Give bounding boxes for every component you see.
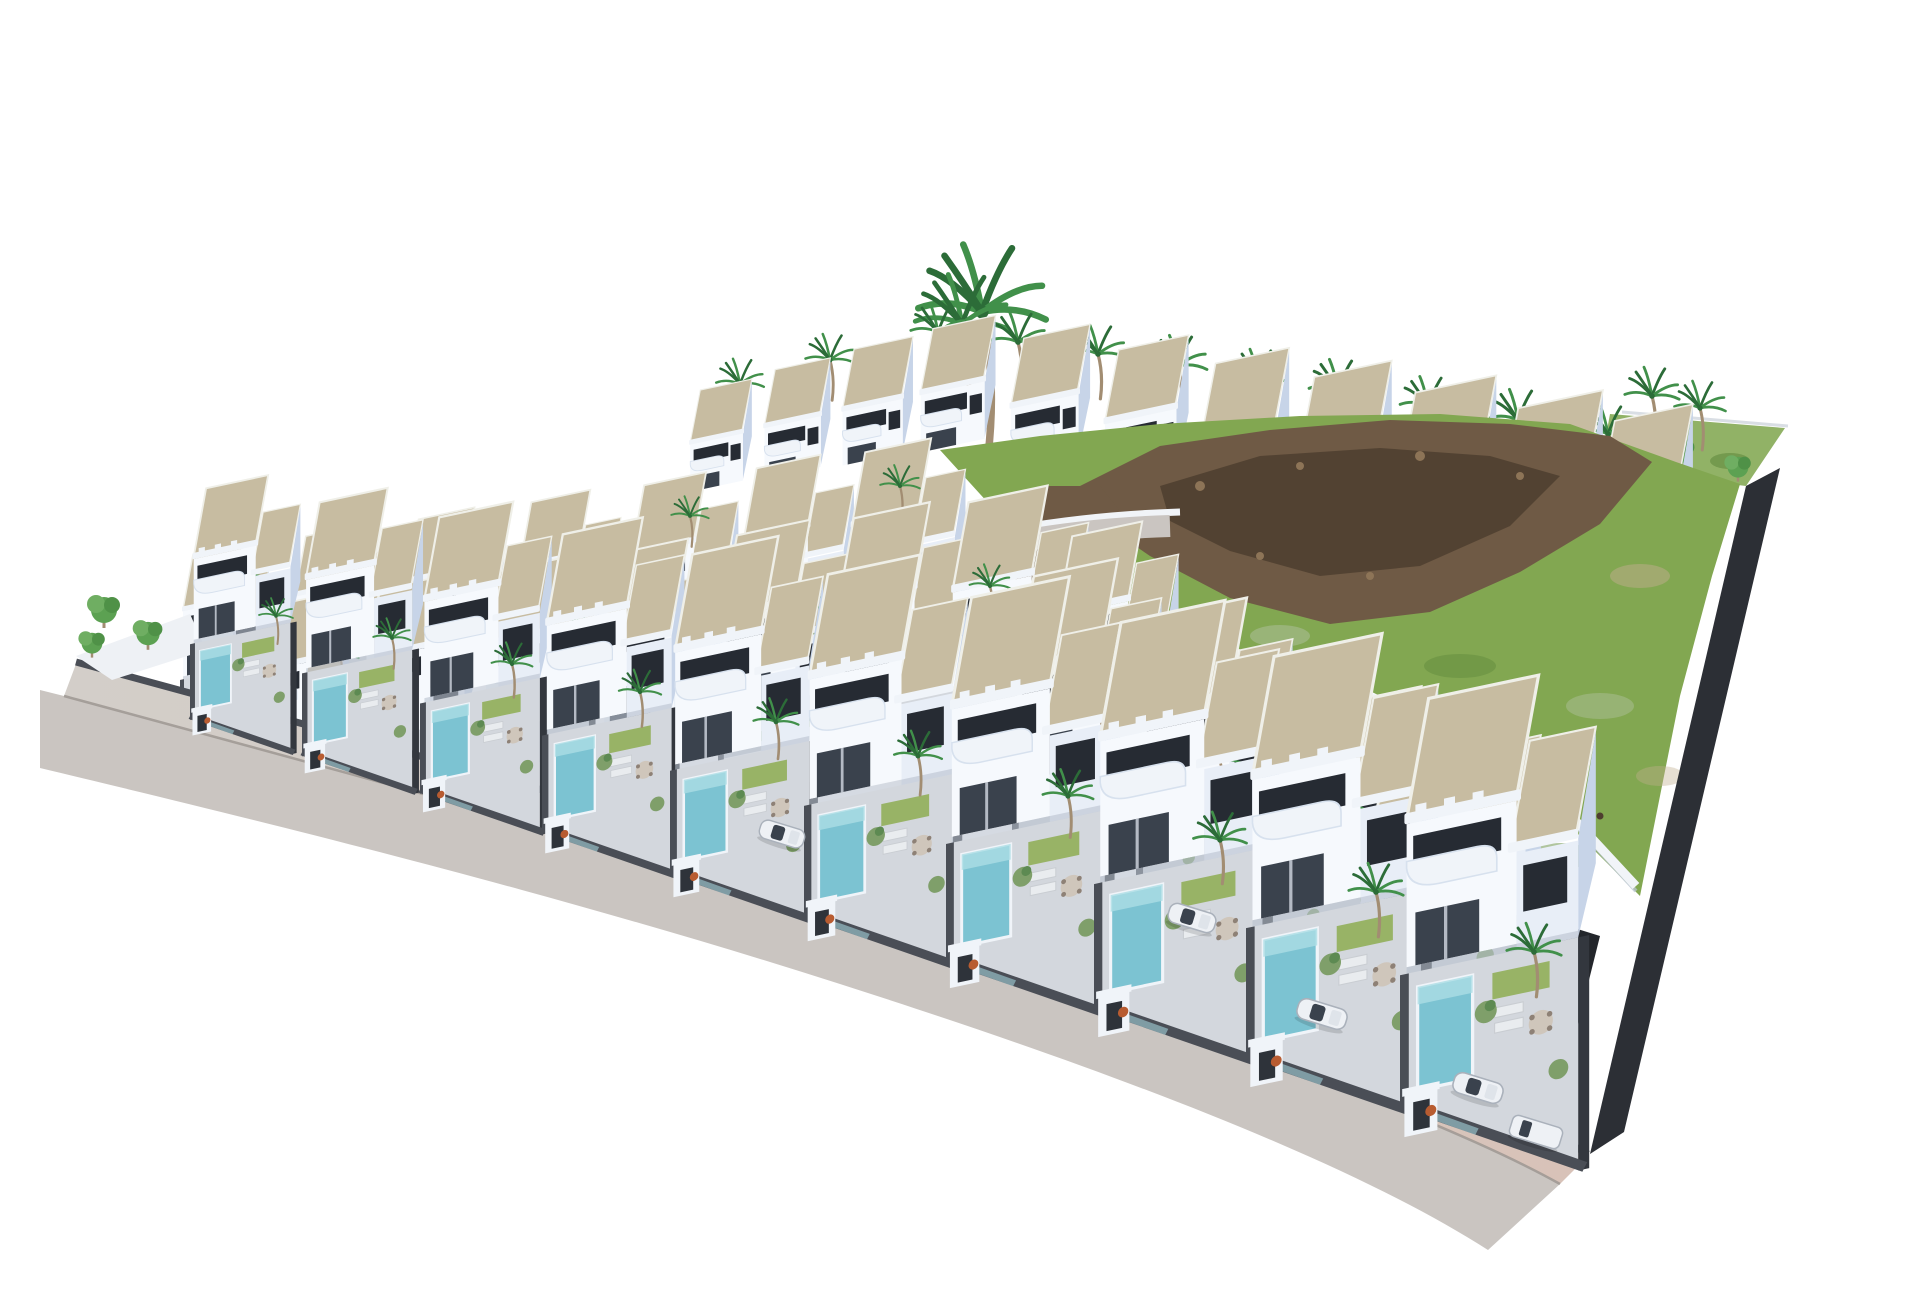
villa-with-pool (302, 480, 423, 817)
architectural-render: Aerial 3D architectural rendering of a h… (40, 16, 1920, 1294)
villa (919, 315, 995, 452)
villa-with-pool (1400, 663, 1596, 1208)
villa-with-pool (670, 527, 823, 953)
villa-with-pool (542, 509, 684, 906)
villa-with-pool (190, 468, 300, 775)
villa-with-pool (420, 493, 552, 860)
villa-with-pool (804, 545, 968, 1001)
villa-development-scene (40, 16, 1920, 1294)
tree (87, 595, 120, 628)
